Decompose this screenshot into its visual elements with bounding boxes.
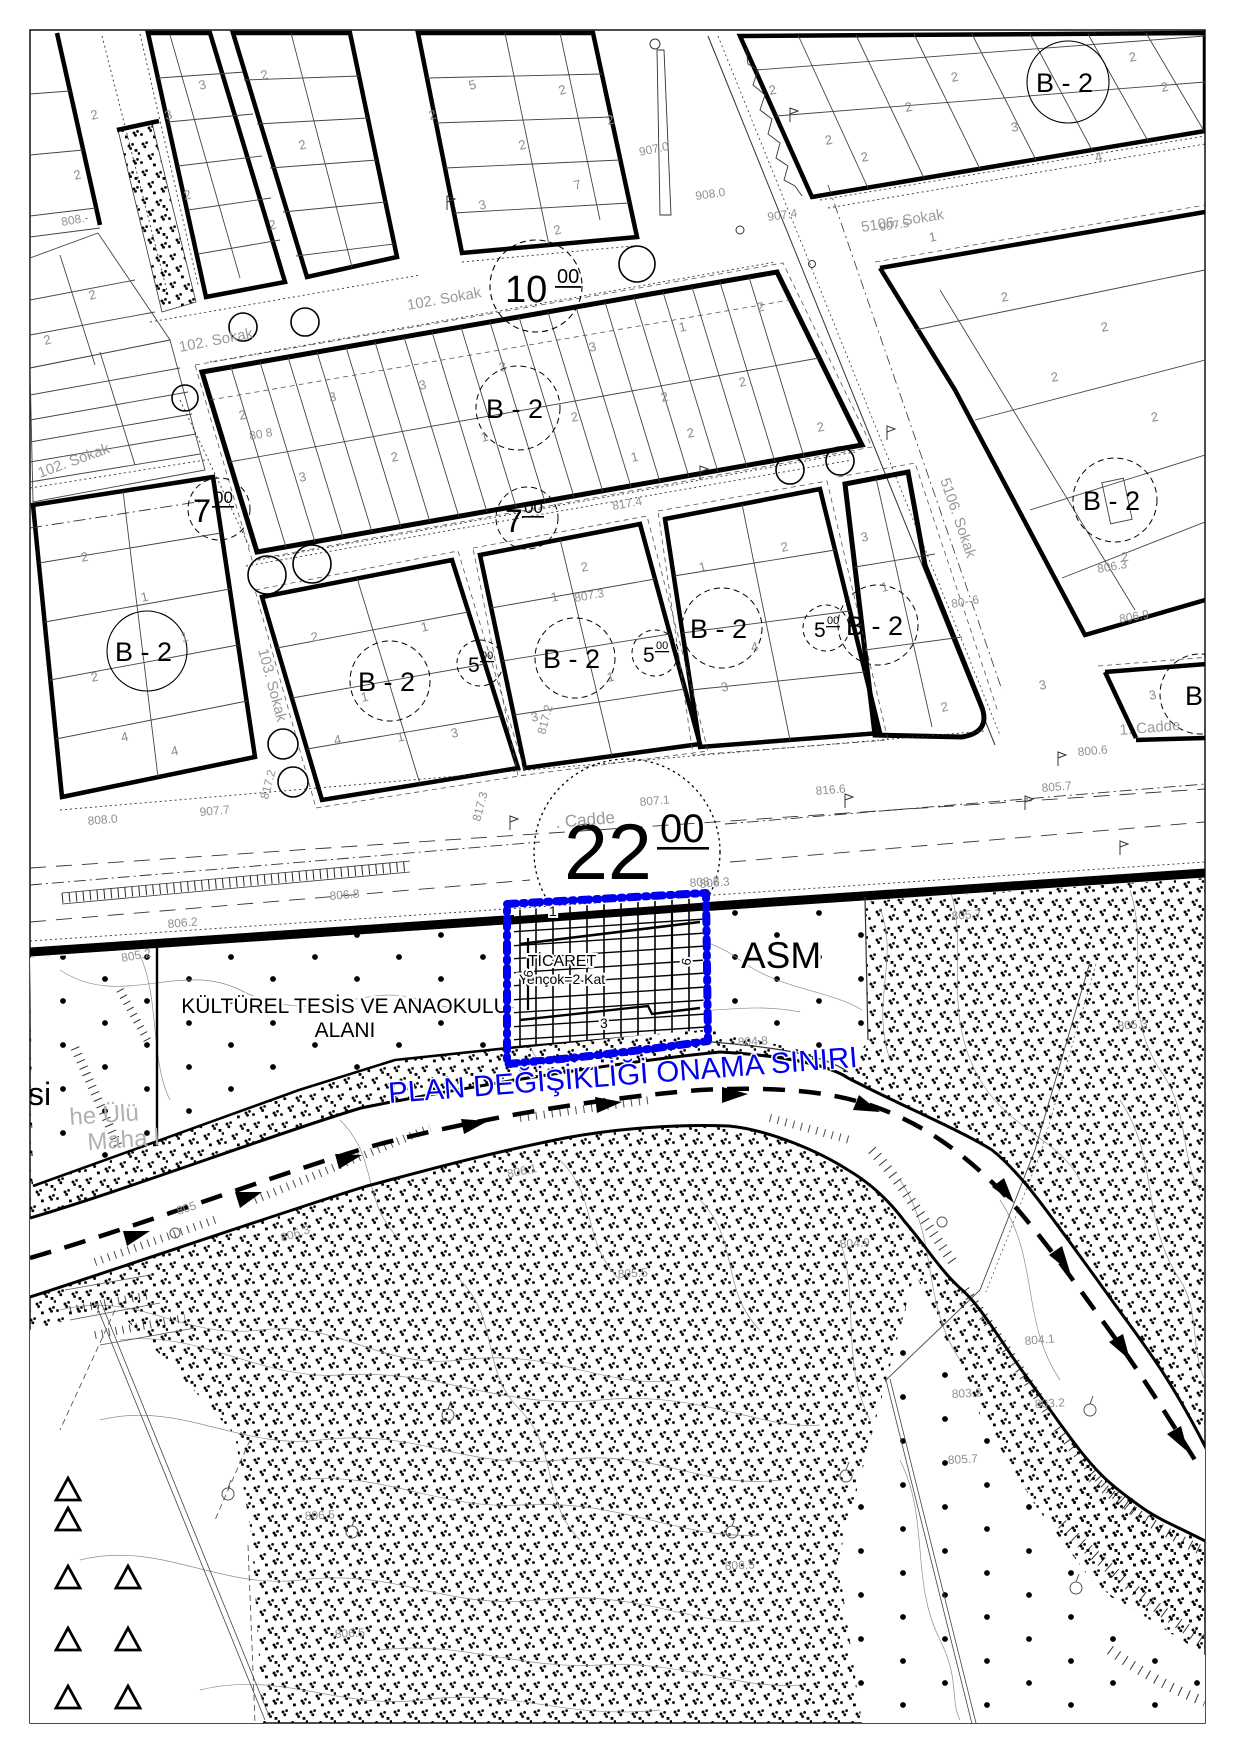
- svg-text:806.3: 806.3: [699, 874, 730, 891]
- svg-text:7: 7: [505, 503, 523, 539]
- svg-text:00: 00: [524, 498, 543, 517]
- svg-text:B - 2: B - 2: [690, 614, 747, 644]
- svg-text:805.7: 805.7: [1041, 778, 1072, 795]
- svg-text:B: B: [1185, 681, 1203, 711]
- svg-text:00: 00: [214, 488, 233, 507]
- svg-text:804.9: 804.9: [839, 1235, 870, 1251]
- svg-text:806.8: 806.8: [329, 886, 360, 903]
- svg-text:00: 00: [827, 615, 839, 627]
- svg-text:3: 3: [600, 1015, 608, 1031]
- svg-text:804.8: 804.8: [737, 1033, 768, 1049]
- svg-text:Maha l: Maha l: [87, 1124, 161, 1156]
- svg-text:00: 00: [656, 640, 668, 652]
- svg-text:B - 2: B - 2: [846, 611, 903, 641]
- svg-text:808.0: 808.0: [87, 811, 118, 828]
- svg-text:KÜLTÜREL TESİS VE ANAOKULU: KÜLTÜREL TESİS VE ANAOKULU: [181, 995, 509, 1018]
- svg-text:ALANI: ALANI: [315, 1019, 376, 1042]
- svg-text:00: 00: [660, 807, 705, 851]
- svg-text:907.7: 907.7: [199, 802, 230, 819]
- svg-text:B - 2: B - 2: [115, 637, 172, 667]
- svg-text:00: 00: [481, 650, 493, 662]
- svg-text:803.2: 803.2: [1034, 1395, 1065, 1411]
- svg-text:B - 2: B - 2: [1036, 68, 1093, 98]
- svg-text:816.6: 816.6: [815, 781, 846, 798]
- svg-text:si: si: [28, 1076, 51, 1112]
- svg-text:7: 7: [193, 493, 211, 529]
- svg-text:805.7: 805.7: [947, 1451, 978, 1467]
- svg-text:TİCARET: TİCARET: [528, 951, 597, 970]
- svg-text:807.1: 807.1: [639, 792, 670, 809]
- svg-text:B - 2: B - 2: [1083, 486, 1140, 516]
- svg-text:806.5: 806.5: [334, 1625, 365, 1641]
- svg-text:806.5: 806.5: [304, 1507, 335, 1523]
- svg-text:805.3: 805.3: [1117, 1016, 1148, 1033]
- svg-text:00: 00: [557, 266, 579, 288]
- svg-text:805.5: 805.5: [617, 1265, 648, 1281]
- svg-text:B - 2: B - 2: [486, 394, 543, 424]
- svg-text:804.1: 804.1: [1024, 1331, 1055, 1348]
- svg-text:5: 5: [814, 619, 826, 642]
- svg-text:5: 5: [468, 654, 480, 677]
- svg-text:806.2: 806.2: [167, 914, 198, 931]
- svg-text:803.2: 803.2: [951, 1385, 982, 1401]
- svg-text:806.5: 806.5: [724, 1557, 755, 1573]
- svg-text:B - 2: B - 2: [543, 644, 600, 674]
- svg-text:800.6: 800.6: [1077, 742, 1108, 759]
- svg-text:805.7: 805.7: [951, 906, 982, 923]
- svg-text:5: 5: [643, 644, 655, 667]
- svg-text:ASM: ASM: [741, 935, 821, 976]
- svg-text:10: 10: [505, 269, 547, 311]
